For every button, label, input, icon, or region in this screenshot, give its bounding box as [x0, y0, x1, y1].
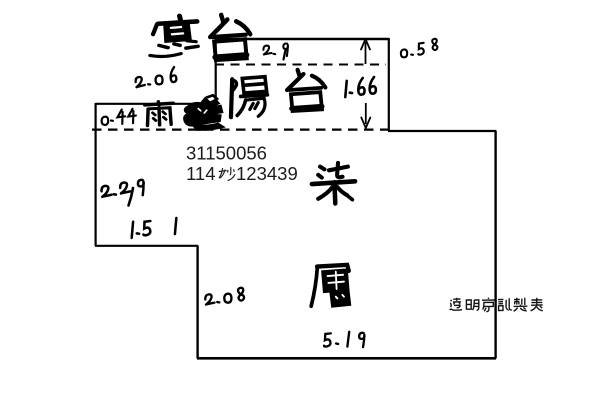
svg-text:114: 114 — [186, 163, 216, 184]
svg-text:123439: 123439 — [236, 163, 298, 184]
svg-text:31150056: 31150056 — [186, 143, 267, 164]
